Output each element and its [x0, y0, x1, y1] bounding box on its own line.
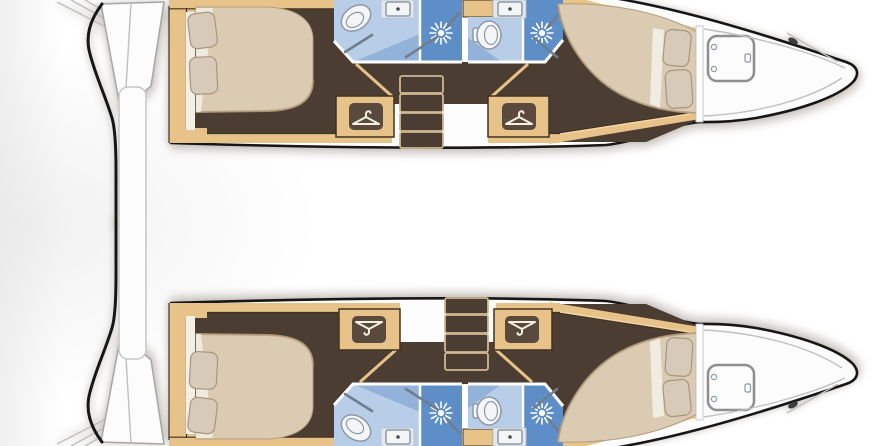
port-hull: [57, 0, 857, 225]
starboard-hull: [57, 221, 857, 446]
layout-svg: Catamaran yacht layout plan — top view, …: [0, 0, 890, 446]
aft-crossbeam: [119, 87, 146, 359]
catamaran-layout-plan: Catamaran yacht layout plan — top view, …: [0, 0, 890, 446]
